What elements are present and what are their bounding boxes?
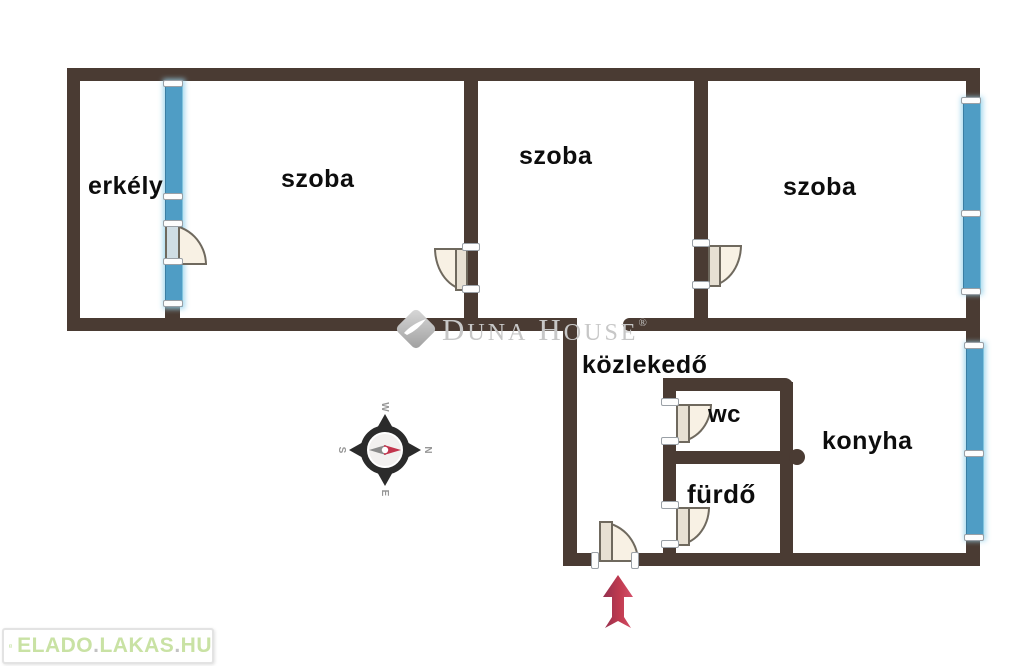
wordmark-letter: D: [442, 312, 467, 347]
wall: [966, 292, 980, 331]
footer-text-part: ELADO: [17, 634, 93, 657]
door-jamb: [692, 281, 710, 289]
compass-south-label: S: [336, 447, 347, 454]
room-label-szoba-3: szoba: [783, 173, 856, 202]
wall: [67, 68, 980, 81]
compass-north-label: N: [422, 446, 433, 453]
door-jamb: [661, 540, 679, 548]
room-label-wc: wc: [708, 401, 741, 429]
window-divider: [961, 97, 981, 104]
window-divider: [961, 210, 981, 217]
window-divider: [163, 258, 183, 265]
house-icon: [9, 632, 12, 660]
wall: [780, 382, 793, 566]
compass-east-label: E: [379, 490, 390, 497]
wall: [663, 440, 676, 506]
footer-text-part: LAKAS: [99, 634, 174, 657]
window-glass: [963, 99, 981, 293]
door-jamb: [692, 239, 710, 247]
wordmark-letters: UNA: [467, 320, 528, 346]
wall-knob: [789, 449, 805, 465]
window-divider: [163, 193, 183, 200]
door-jamb: [661, 398, 679, 406]
window-divider: [163, 300, 183, 307]
wall: [966, 538, 980, 566]
wordmark-letters: OUSE: [564, 320, 639, 346]
footer-logo-text: ELADO.LAKAS.HU: [17, 634, 212, 658]
room-label-konyha: konyha: [822, 427, 913, 456]
room-label-kozlekedo: közlekedő: [582, 351, 707, 380]
door-jamb: [462, 285, 480, 293]
footer-text-part: HU: [181, 634, 212, 657]
window-divider: [163, 80, 183, 87]
wall: [623, 318, 980, 331]
door-jamb: [661, 501, 679, 509]
wall: [663, 451, 793, 464]
window-divider: [964, 342, 984, 349]
door-leaf: [708, 245, 721, 287]
wall: [635, 553, 980, 566]
room-label-szoba-2: szoba: [519, 142, 592, 171]
window-glass: [966, 344, 984, 539]
window-divider: [964, 450, 984, 457]
duna-house-watermark: DUNAHOUSE®: [390, 303, 647, 355]
compass-rose-icon: W N E S: [335, 400, 435, 500]
duna-house-wordmark: DUNAHOUSE®: [442, 314, 647, 345]
compass-west-label: W: [379, 402, 390, 412]
wall: [67, 68, 80, 331]
window-divider: [964, 534, 984, 541]
door-jamb: [462, 243, 480, 251]
door-jamb: [631, 552, 639, 569]
entrance-arrow-icon: [600, 574, 636, 630]
floor-plan: erkély szoba szoba szoba közlekedő wc fü…: [0, 0, 1024, 666]
door-leaf: [599, 521, 613, 562]
window-divider: [961, 288, 981, 295]
room-label-erkely: erkély: [88, 172, 163, 201]
room-label-szoba-1: szoba: [281, 165, 354, 194]
wall: [563, 318, 577, 566]
door-jamb: [661, 437, 679, 445]
door-jamb: [591, 552, 599, 569]
room-label-furdo: fürdő: [687, 479, 756, 510]
window-divider: [163, 220, 183, 227]
duna-house-diamond-icon: [390, 303, 442, 355]
elado-lakas-hu-logo: ELADO.LAKAS.HU: [2, 628, 214, 664]
wordmark-letter: H: [538, 312, 563, 347]
registered-mark: ®: [638, 317, 646, 329]
